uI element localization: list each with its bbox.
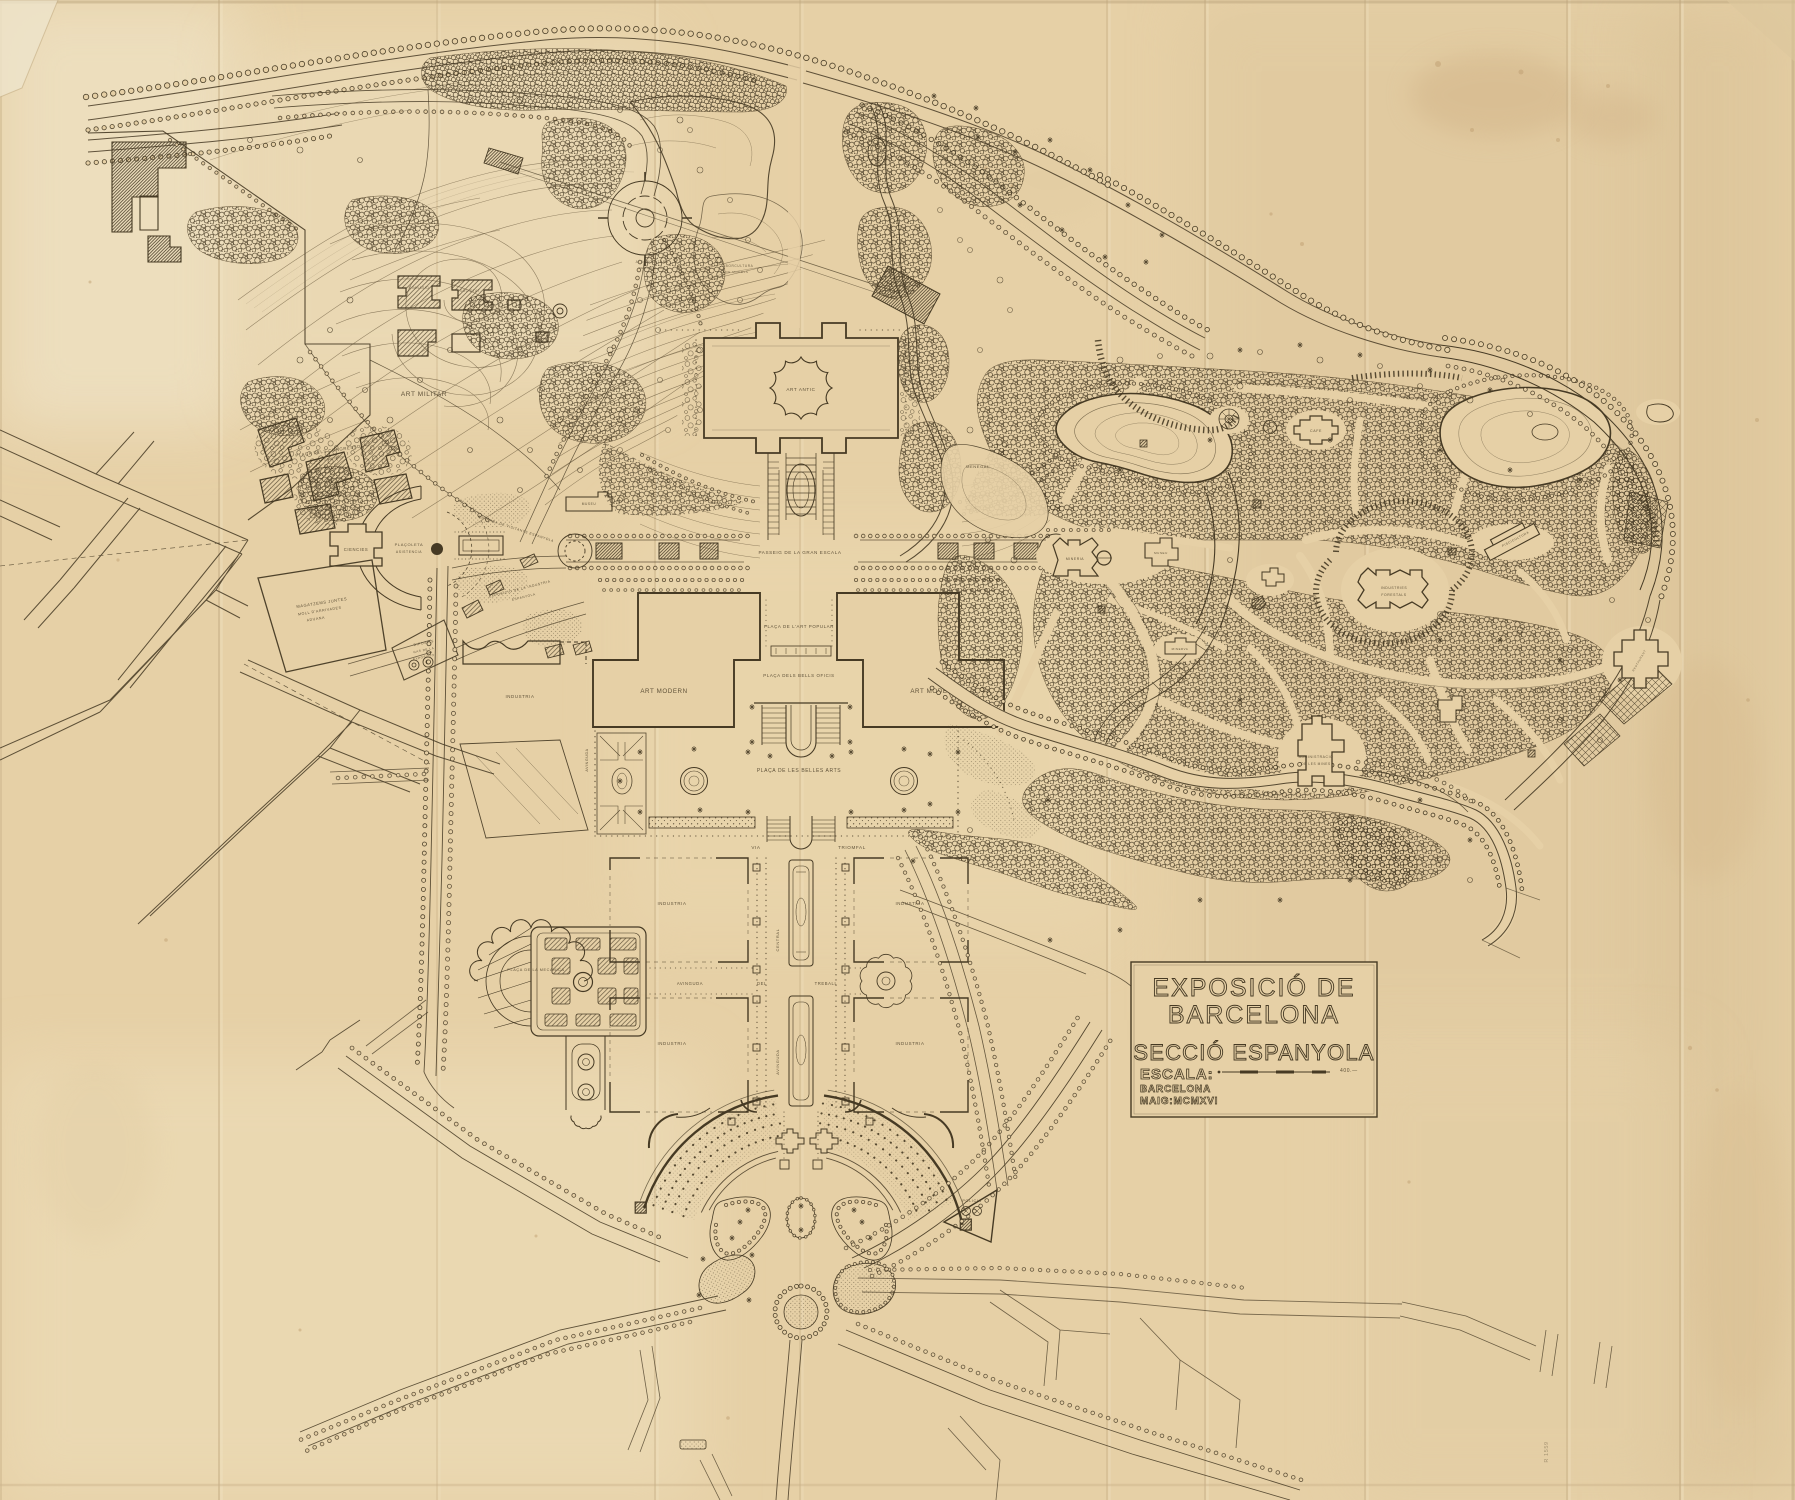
svg-text:ESCALA:: ESCALA: <box>1140 1066 1214 1083</box>
svg-text:VIA: VIA <box>751 845 761 850</box>
svg-text:MUSEU: MUSEU <box>582 502 597 506</box>
svg-text:FONT DEL GAT: FONT DEL GAT <box>1316 694 1343 698</box>
svg-text:EXPOSICIÓ DE: EXPOSICIÓ DE <box>1152 973 1355 1002</box>
svg-text:ASISTENCIA: ASISTENCIA <box>396 550 422 554</box>
svg-text:400.—: 400.— <box>1340 1068 1358 1074</box>
svg-text:ALBORCULTURA: ALBORCULTURA <box>721 264 754 268</box>
svg-text:POLICIA: POLICIA <box>962 1199 981 1203</box>
svg-text:AVINGUDA: AVINGUDA <box>585 748 589 771</box>
svg-text:INDUSTRIA: INDUSTRIA <box>657 901 686 906</box>
svg-text:MINERVA: MINERVA <box>1172 647 1189 651</box>
svg-text:MUSEU: MUSEU <box>1154 551 1168 555</box>
svg-text:BARCELONA: BARCELONA <box>1168 1001 1340 1029</box>
svg-text:MENEGAL: MENEGAL <box>966 464 990 469</box>
svg-text:PLAÇOLETA: PLAÇOLETA <box>395 542 424 547</box>
svg-text:DEL: DEL <box>757 981 767 986</box>
svg-text:PLAÇA DE LA MECANICA: PLAÇA DE LA MECANICA <box>507 968 564 972</box>
svg-text:PASSEIG DE LA GRAN ESCALA: PASSEIG DE LA GRAN ESCALA <box>758 550 841 555</box>
svg-text:PLAÇA DE L'ART POPULAR: PLAÇA DE L'ART POPULAR <box>764 624 834 629</box>
svg-text:DE MODELS: DE MODELS <box>725 270 748 274</box>
svg-text:DE LES MINES: DE LES MINES <box>1301 762 1331 766</box>
svg-text:BARCELONA: BARCELONA <box>1140 1084 1211 1095</box>
svg-text:AVINGUDA: AVINGUDA <box>775 1049 780 1074</box>
svg-text:MINERIA: MINERIA <box>1066 557 1084 561</box>
svg-text:PLAÇA DELS BELLS OFICIS: PLAÇA DELS BELLS OFICIS <box>763 673 834 678</box>
svg-text:AVINGUDA: AVINGUDA <box>677 981 703 986</box>
svg-text:ART MODERN: ART MODERN <box>640 688 687 695</box>
svg-text:ART ANTIC: ART ANTIC <box>786 387 815 392</box>
svg-text:INDUSTRIA: INDUSTRIA <box>505 694 534 699</box>
svg-text:INDUSTRIA: INDUSTRIA <box>895 1041 924 1046</box>
svg-text:PLAÇA DE LES BELLES ARTS: PLAÇA DE LES BELLES ARTS <box>757 768 841 774</box>
svg-text:TRIOMFAL: TRIOMFAL <box>838 845 866 850</box>
svg-text:R 1559: R 1559 <box>1544 1441 1550 1462</box>
svg-text:CIENCIES: CIENCIES <box>344 547 369 552</box>
svg-text:GIMNASIO: GIMNASIO <box>409 286 430 290</box>
svg-text:MAIG:MCMXVI: MAIG:MCMXVI <box>1140 1096 1218 1107</box>
svg-text:SOCIETAT: SOCIETAT <box>460 289 480 293</box>
svg-text:CENTRAL: CENTRAL <box>775 928 780 951</box>
svg-text:REMODELADA: REMODELADA <box>638 266 665 270</box>
svg-text:ART MILITAR: ART MILITAR <box>401 391 447 398</box>
svg-text:INDUSTRIES: INDUSTRIES <box>1381 586 1408 590</box>
svg-text:ADMINISTRACIO: ADMINISTRACIO <box>1299 755 1334 759</box>
svg-text:INDUSTRIA: INDUSTRIA <box>657 1041 686 1046</box>
svg-text:SECCIÓ ESPANYOLA: SECCIÓ ESPANYOLA <box>1133 1040 1374 1065</box>
svg-text:TREBALL: TREBALL <box>815 981 838 986</box>
svg-text:FORESTALS: FORESTALS <box>1381 593 1406 597</box>
svg-text:CAFE: CAFE <box>1310 429 1322 433</box>
